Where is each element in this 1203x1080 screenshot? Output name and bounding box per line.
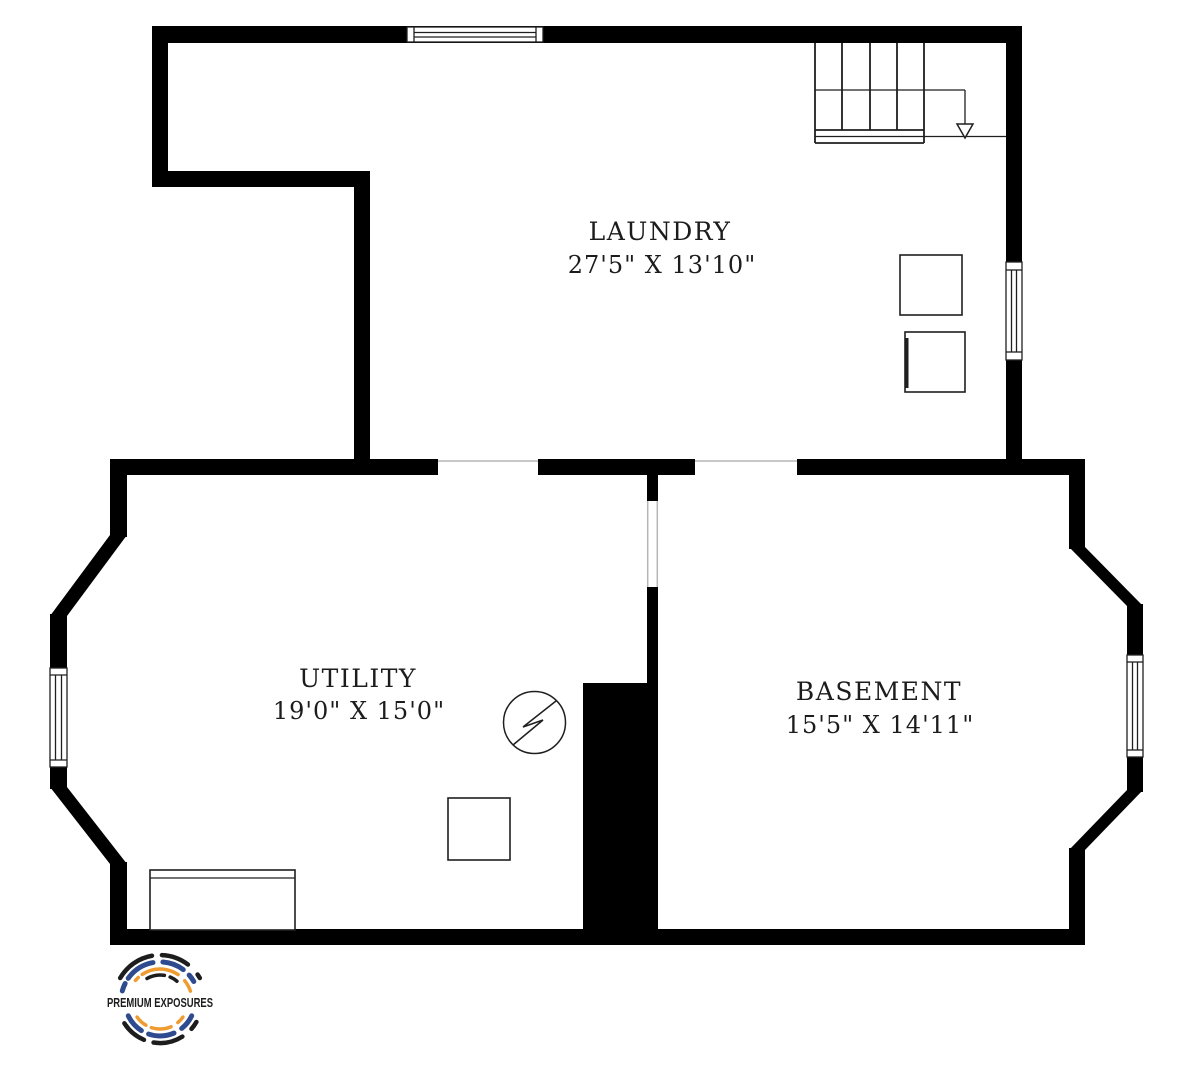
laundry-name: LAUNDRY	[589, 217, 732, 246]
door-openings	[438, 461, 797, 587]
dryer-appliance	[905, 332, 965, 392]
room-label-utility: UTILITY 19'0" X 15'0"	[273, 664, 445, 725]
top-window-symbol	[407, 27, 543, 42]
room-label-basement: BASEMENT 15'5" X 14'11"	[786, 677, 975, 739]
laundry-right-window-symbol	[1006, 262, 1022, 360]
utility-fixture	[448, 798, 510, 860]
room-label-laundry: LAUNDRY 27'5" X 13'10"	[568, 217, 757, 279]
walls	[50, 26, 1143, 945]
stairs-symbol	[815, 43, 1006, 143]
utility-name: UTILITY	[299, 664, 417, 693]
laundry-dims: 27'5" X 13'10"	[568, 251, 757, 279]
storage-bench	[150, 870, 295, 930]
premium-exposures-logo: PREMIUM EXPOSURES	[107, 955, 213, 1043]
basement-dims: 15'5" X 14'11"	[786, 711, 975, 739]
basement-bay-window-symbol	[1127, 655, 1143, 757]
floorplan-drawing: LAUNDRY 27'5" X 13'10" UTILITY 19'0" X 1…	[0, 0, 1203, 1080]
floorplan-page: LAUNDRY 27'5" X 13'10" UTILITY 19'0" X 1…	[0, 0, 1203, 1080]
basement-name: BASEMENT	[796, 677, 962, 706]
logo-text: PREMIUM EXPOSURES	[107, 995, 213, 1010]
utility-dims: 19'0" X 15'0"	[273, 697, 445, 725]
electrical-meter-icon	[504, 692, 566, 754]
washer-appliance	[900, 255, 962, 315]
utility-bay-window-symbol	[50, 668, 67, 767]
